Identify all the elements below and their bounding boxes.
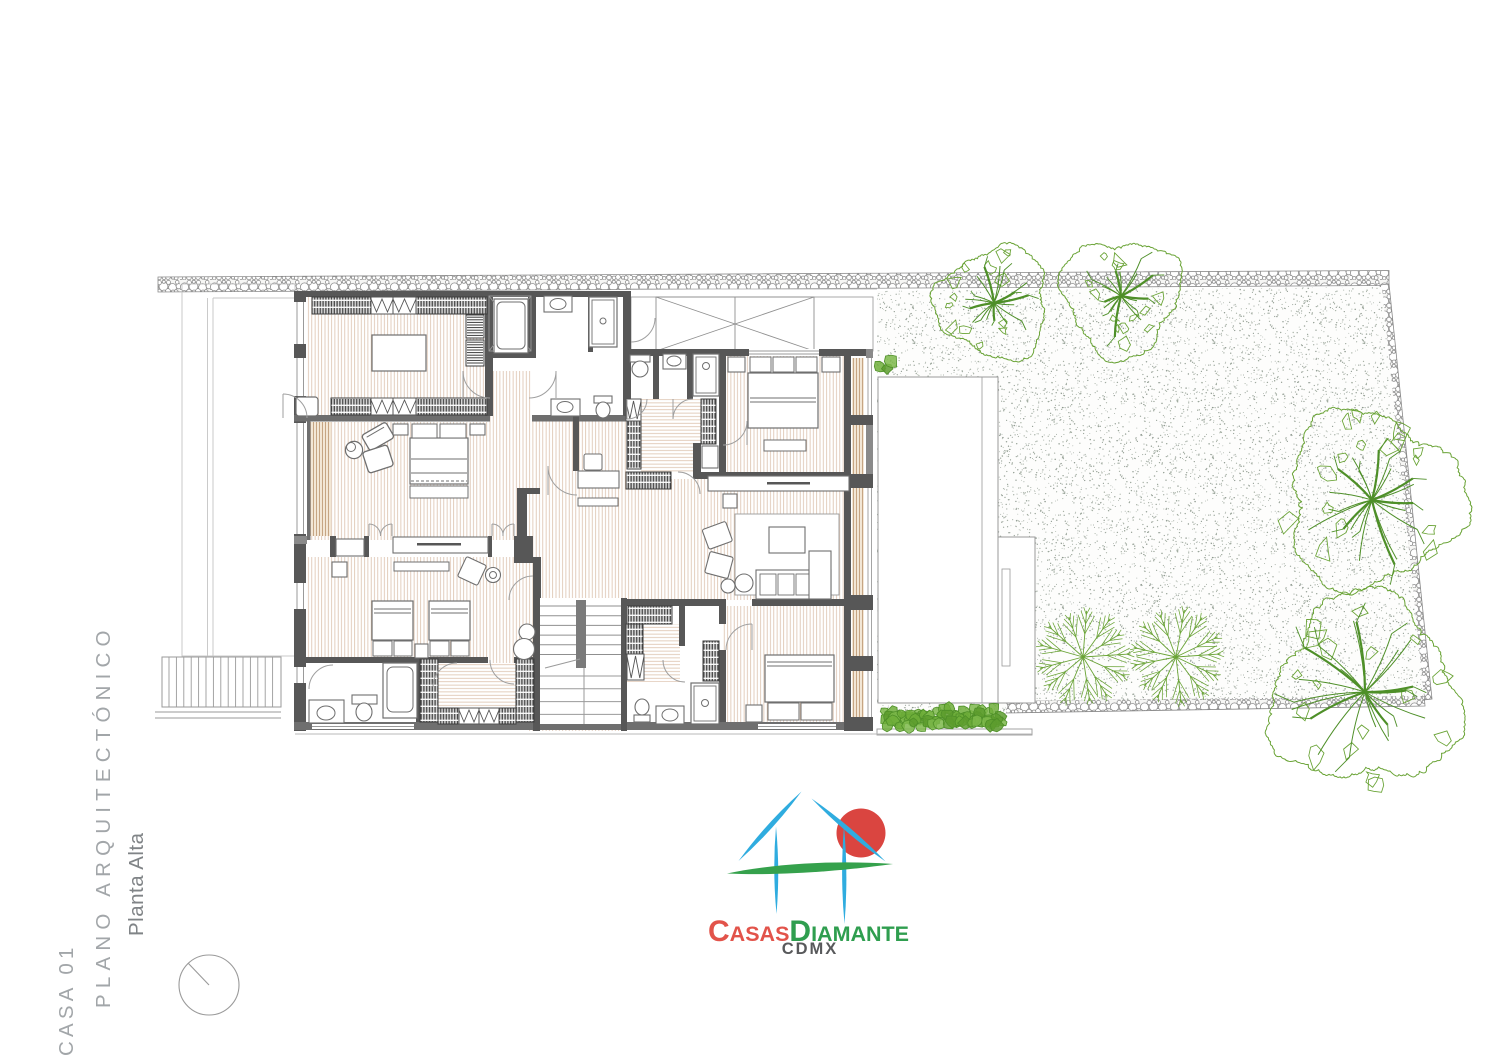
svg-text:PLANO ARQUITECTÓNICO: PLANO ARQUITECTÓNICO xyxy=(92,624,115,1008)
svg-text:Planta Alta: Planta Alta xyxy=(125,832,148,936)
svg-text:CASA 01: CASA 01 xyxy=(55,943,78,1056)
svg-text:CDMX: CDMX xyxy=(782,940,839,958)
